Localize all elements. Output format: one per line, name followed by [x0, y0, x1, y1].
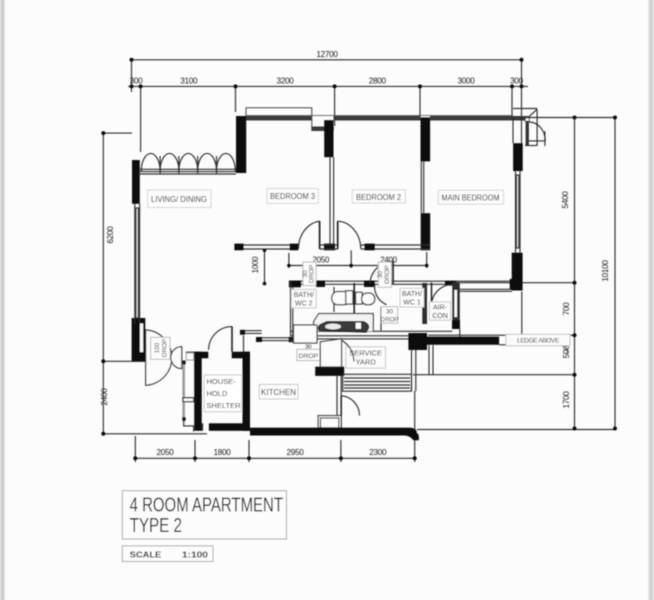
svg-text:2950: 2950	[286, 448, 304, 457]
svg-text:WC 1: WC 1	[403, 300, 421, 307]
svg-text:AIR-: AIR-	[433, 305, 448, 312]
svg-text:1700: 1700	[562, 391, 571, 409]
svg-text:BATH/: BATH/	[294, 292, 314, 299]
svg-text:500: 500	[562, 345, 571, 359]
svg-text:2050: 2050	[156, 448, 174, 457]
svg-text:BATH/: BATH/	[402, 291, 422, 298]
svg-text:1:100: 1:100	[182, 550, 208, 560]
svg-text:DROP: DROP	[380, 317, 398, 324]
svg-text:2800: 2800	[369, 77, 387, 86]
svg-text:100: 100	[154, 342, 161, 353]
svg-text:HOUSE-: HOUSE-	[207, 377, 237, 386]
svg-text:CON: CON	[432, 313, 448, 320]
svg-text:5400: 5400	[561, 191, 570, 209]
svg-text:YARD: YARD	[355, 358, 376, 367]
svg-text:LIVING/ DINING: LIVING/ DINING	[151, 195, 207, 204]
svg-text:700: 700	[562, 302, 571, 316]
svg-text:DROP: DROP	[298, 353, 318, 360]
svg-text:30: 30	[386, 309, 394, 316]
svg-text:2300: 2300	[369, 448, 387, 457]
svg-text:DROP: DROP	[162, 339, 169, 357]
svg-text:6200: 6200	[106, 226, 115, 244]
svg-text:3100: 3100	[180, 77, 198, 86]
svg-text:300: 300	[130, 77, 144, 86]
svg-text:30: 30	[305, 345, 311, 351]
svg-text:WC 2: WC 2	[295, 301, 313, 308]
svg-text:12700: 12700	[316, 50, 338, 59]
svg-text:SHELTER: SHELTER	[207, 401, 242, 410]
svg-text:HOLD: HOLD	[207, 389, 228, 398]
svg-text:3200: 3200	[276, 77, 294, 86]
svg-text:MAIN BEDROOM: MAIN BEDROOM	[442, 194, 500, 203]
svg-text:DROP: DROP	[308, 265, 315, 283]
svg-text:10100: 10100	[601, 260, 610, 282]
svg-text:4 ROOM APARTMENT: 4 ROOM APARTMENT	[130, 495, 283, 517]
svg-text:1000: 1000	[251, 256, 260, 273]
svg-text:TYPE 2: TYPE 2	[130, 515, 182, 537]
svg-text:LEDGE ABOVE: LEDGE ABOVE	[517, 338, 559, 345]
svg-text:KITCHEN: KITCHEN	[261, 388, 296, 397]
svg-text:300: 300	[510, 77, 524, 86]
svg-text:2400: 2400	[100, 388, 109, 406]
svg-text:SERVICE: SERVICE	[349, 349, 382, 358]
svg-text:3000: 3000	[457, 77, 475, 86]
svg-text:DROP: DROP	[384, 265, 391, 283]
svg-text:1800: 1800	[213, 448, 231, 457]
svg-text:BEDROOM 3: BEDROOM 3	[270, 192, 316, 201]
svg-text:BEDROOM 2: BEDROOM 2	[356, 193, 402, 202]
svg-text:SCALE: SCALE	[130, 550, 162, 560]
